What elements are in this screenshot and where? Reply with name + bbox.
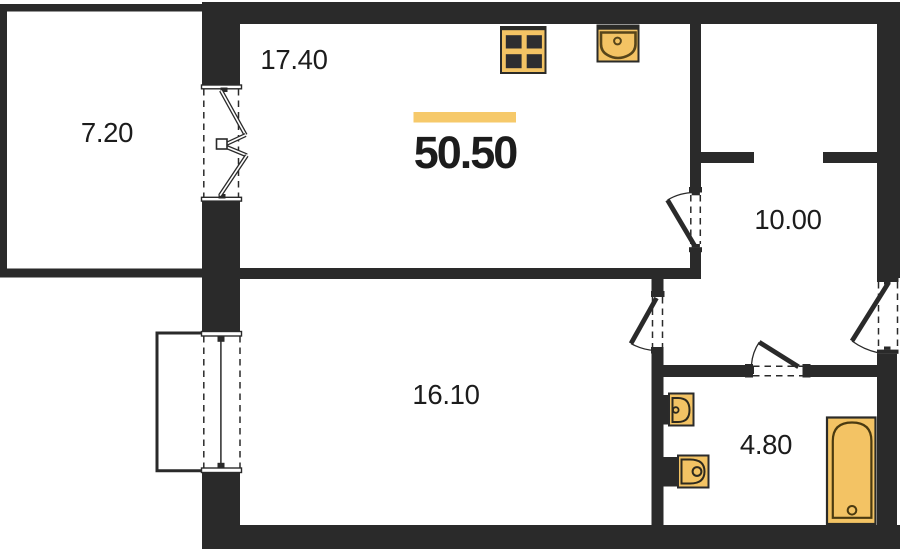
svg-text:4.80: 4.80: [740, 429, 792, 460]
svg-text:16.10: 16.10: [412, 379, 479, 410]
svg-text:50.50: 50.50: [414, 127, 518, 178]
svg-text:7.20: 7.20: [81, 117, 133, 148]
svg-text:17.40: 17.40: [260, 44, 327, 75]
svg-text:10.00: 10.00: [754, 204, 821, 235]
